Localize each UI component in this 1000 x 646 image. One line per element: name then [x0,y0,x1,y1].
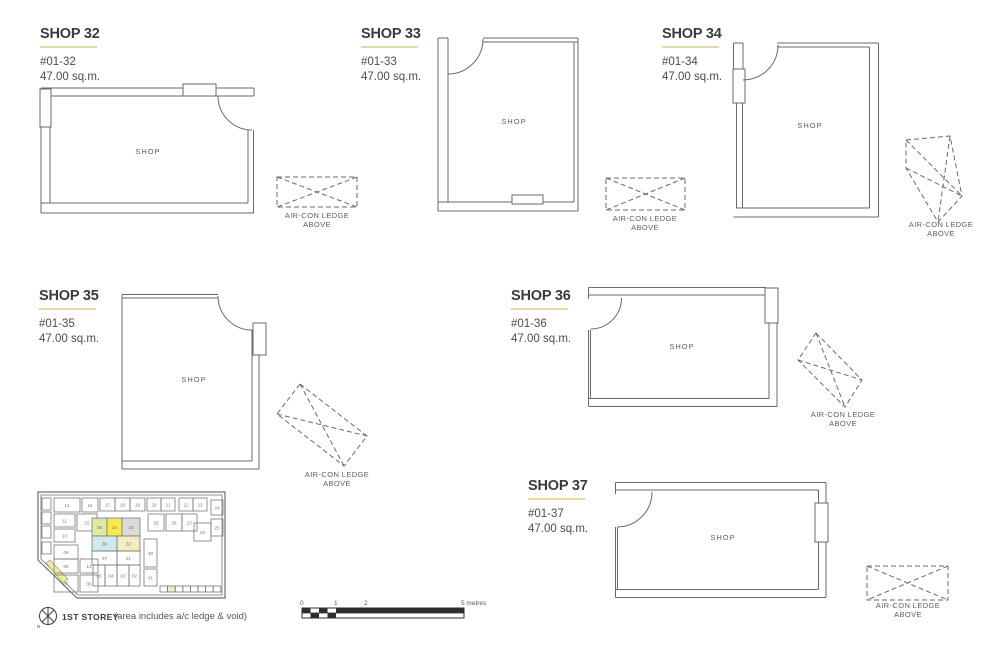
keyplan-cell [206,586,214,592]
aircon-ledge-shop-36 [793,328,867,412]
keyplan-cell-number: 17 [105,502,111,507]
keyplan-cell [213,586,221,592]
scale-tick: 0 [300,600,304,607]
keyplan-cell-number: 29 [153,520,159,525]
aircon-ledge-label: AIR-CON LEDGEABOVE [301,470,373,488]
wall-column [512,195,543,204]
keyplan-cell-number: 01 [148,575,154,580]
unit-area: 47.00 sq.m. [528,522,588,537]
scale-tick: 2 [364,600,368,607]
north-label: N [37,624,40,629]
room-label: SHOP [135,147,160,156]
keyplan: 1216171819202122232425111510090813070635… [25,483,230,601]
keyplan-cell [42,512,51,524]
keyplan-cell-number: 05 [96,573,102,578]
aircon-ledge-label: AIR-CON LEDGEABOVE [905,220,977,238]
keyplan-cell-number: 10 [62,533,68,538]
unit-title: SHOP 37 [528,479,588,494]
keyplan-cell-number: 20 [151,502,157,507]
keyplan-cell-number: 19 [135,502,141,507]
keyplan-cell [183,586,191,592]
north-compass-icon: N [36,605,60,631]
unit-header-shop-33: SHOP 33 #01-33 47.00 sq.m. [361,27,421,85]
unit-area: 47.00 sq.m. [511,332,571,347]
unit-title: SHOP 33 [361,27,421,42]
keyplan-cell [42,526,51,538]
keyplan-cell-number: 27 [187,520,193,525]
keyplan-cell-number: 24 [214,505,220,510]
title-underline-accent [39,308,96,310]
unit-number: #01-37 [528,507,588,522]
unit-number: #01-35 [39,317,99,332]
keyplan-cell-number: 22 [183,502,189,507]
wall-column [815,503,828,542]
keyplan-cell-number: 31 [126,556,132,561]
keyplan-cell-number: 18 [120,502,126,507]
keyplan-cell-number: 36 [102,541,108,546]
aircon-ledge-label: AIR-CON LEDGEABOVE [866,601,950,619]
floorplan-shop-33: SHOP [437,35,579,214]
keyplan-cell-number: 15 [84,520,90,525]
aircon-ledge-shop-33 [605,177,687,212]
floorplan-page: SHOP 32 #01-32 47.00 sq.m. SHOP 33 #01-3… [0,0,1000,646]
keyplan-cell-number: 06 [86,581,92,586]
wall-column [40,89,51,127]
keyplan-cell-number: 21 [165,502,171,507]
keyplan-cell-number: 25 [214,525,220,530]
keyplan-cell-number: 16 [87,503,93,508]
aircon-ledge-shop-34 [898,132,970,226]
unit-area: 47.00 sq.m. [40,70,100,85]
keyplan-cell-number: 02 [132,573,138,578]
keyplan-cell [168,586,176,592]
area-note: (area includes a/c ledge & void) [114,611,247,622]
scale-bar: 0 1 2 5 metres [296,596,506,626]
aircon-ledge-label: AIR-CON LEDGEABOVE [276,211,358,229]
door-arc [448,39,483,74]
keyplan-cell-number: 04 [108,573,114,578]
unit-area: 47.00 sq.m. [39,332,99,347]
unit-number: #01-33 [361,55,421,70]
aircon-ledge-label: AIR-CON LEDGEABOVE [604,214,686,232]
aircon-ledge-label: AIR-CON LEDGEABOVE [807,410,879,428]
title-underline-accent [40,46,97,48]
door-arc [618,492,653,527]
scale-tick: 5 metres [461,600,487,607]
aircon-ledge-shop-32 [276,176,358,209]
room-label: SHOP [710,533,735,542]
unit-header-shop-35: SHOP 35 #01-35 47.00 sq.m. [39,289,99,347]
keyplan-cell-number: 37 [102,556,108,561]
door-arc [218,296,252,330]
keyplan-cell-number: 03 [120,573,126,578]
wall-column [253,323,266,355]
keyplan-cell-number: 26 [200,530,206,535]
title-underline-accent [528,498,585,500]
keyplan-cell-number: 28 [171,520,177,525]
room-label: SHOP [797,121,822,130]
keyplan-cell-number: 07 [63,581,69,586]
keyplan-cell-number: 33 [128,525,134,530]
unit-area: 47.00 sq.m. [361,70,421,85]
unit-area: 47.00 sq.m. [662,70,722,85]
title-underline-accent [662,46,719,48]
unit-title: SHOP 36 [511,289,571,304]
keyplan-cell-number: 11 [62,518,67,523]
title-underline-accent [511,308,568,310]
keyplan-cell [190,586,198,592]
keyplan-cell-number: 09 [63,550,69,555]
unit-header-shop-34: SHOP 34 #01-34 47.00 sq.m. [662,27,722,85]
scale-bar-graphic [302,608,464,618]
storey-label: 1ST STOREY [62,612,119,622]
floorplan-shop-35: SHOP [120,293,270,473]
unit-title: SHOP 32 [40,27,100,42]
unit-title: SHOP 35 [39,289,99,304]
keyplan-cell [42,498,51,510]
keyplan-cell [160,586,168,592]
room-label: SHOP [181,375,206,384]
floorplan-shop-36: SHOP [588,285,779,409]
unit-header-shop-32: SHOP 32 #01-32 47.00 sq.m. [40,27,100,85]
keyplan-cell-number: 34 [112,525,118,530]
door-arc [591,298,622,329]
unit-number: #01-34 [662,55,722,70]
room-label: SHOP [669,342,694,351]
wall-column [183,84,216,96]
aircon-ledge-shop-37 [865,564,951,604]
wall-column [733,69,745,103]
keyplan-cell-number: 23 [197,502,203,507]
keyplan-cell-number: 08 [63,564,69,569]
keyplan-cell-number: 30 [148,551,154,556]
unit-header-shop-36: SHOP 36 #01-36 47.00 sq.m. [511,289,571,347]
floorplan-shop-34: SHOP [733,41,881,219]
door-arc [743,45,778,80]
door-arc [218,96,252,130]
keyplan-cell-number: 35 [97,525,103,530]
unit-number: #01-32 [40,55,100,70]
keyplan-cell-number: 32 [126,541,132,546]
unit-number: #01-36 [511,317,571,332]
keyplan-cell-number: 13 [86,564,92,569]
unit-title: SHOP 34 [662,27,722,42]
floorplan-shop-32: SHOP [40,84,256,216]
scale-tick: 1 [334,600,338,607]
room-label: SHOP [501,117,526,126]
keyplan-cell [42,542,51,554]
aircon-ledge-shop-35 [272,380,372,472]
unit-header-shop-37: SHOP 37 #01-37 47.00 sq.m. [528,479,588,537]
title-underline-accent [361,46,418,48]
keyplan-cell-number: 12 [64,503,70,508]
keyplan-cell [198,586,206,592]
wall-column [765,288,778,323]
keyplan-cell [175,586,183,592]
floorplan-shop-37: SHOP [615,480,830,600]
